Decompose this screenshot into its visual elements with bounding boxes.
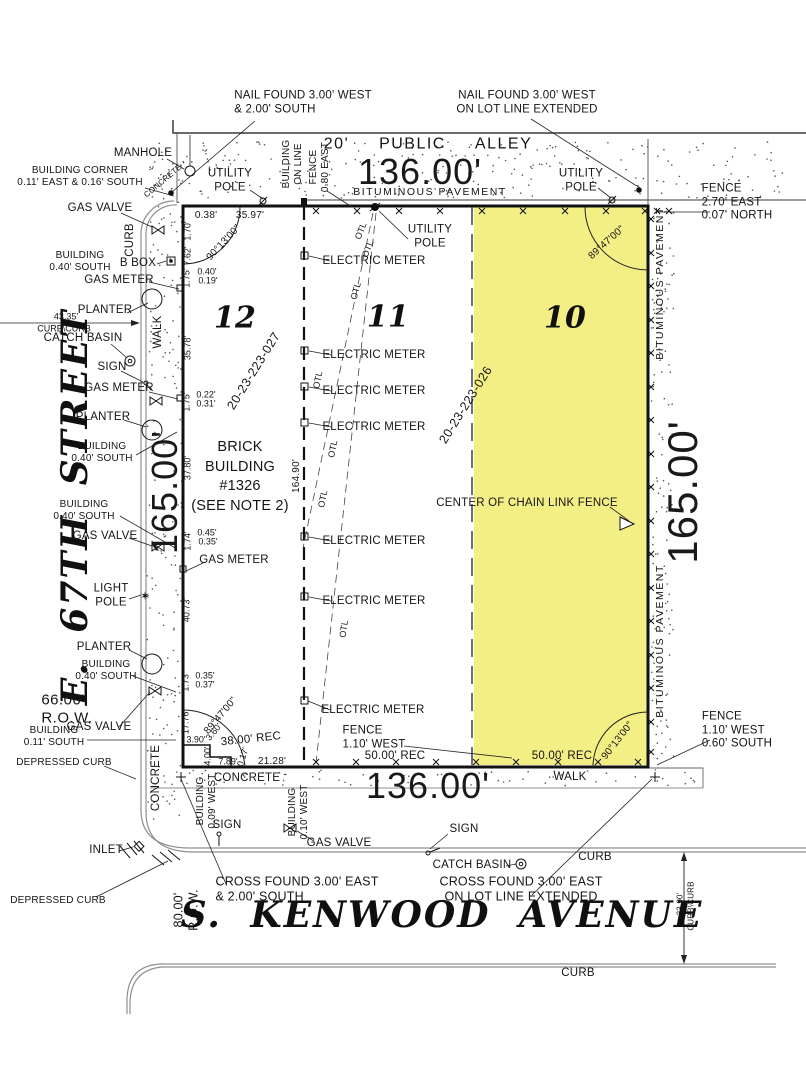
- bituminous-right-label-2: BITUMINOUS PAVEMENT: [654, 564, 666, 718]
- dim-762: 7.62': [183, 246, 194, 265]
- bbox-label: B BOX: [120, 257, 156, 271]
- electric-meter-label-5: ELECTRIC METER: [322, 535, 425, 549]
- curb-left-label: CURB: [124, 223, 138, 256]
- street-67th-label: E. 67TH STREET: [54, 309, 96, 705]
- rec-50-right: 50.00' REC: [532, 750, 592, 764]
- utility-pole-label-3: UTILITY POLE: [408, 223, 452, 250]
- building-040-label-1: BUILDING 0.40' SOUTH: [49, 250, 110, 274]
- planter-3-symbol: [142, 654, 162, 674]
- leader-line: [430, 834, 448, 849]
- building-011-label: BUILDING 0.11' SOUTH: [24, 725, 85, 749]
- gas-valve-label-1: GAS VALVE: [68, 202, 133, 216]
- plat-of-survey: ✶ NAIL FOUND 3.00' WES: [0, 0, 806, 1080]
- lot-12-number: 12: [214, 300, 256, 335]
- dim-165-right: 165.00': [658, 420, 708, 563]
- electric-meter-label-2: ELECTRIC METER: [322, 349, 425, 363]
- depressed-curb-hatching: [120, 841, 180, 865]
- dim-2128: 21.28': [258, 756, 286, 768]
- leader-line: [133, 676, 176, 692]
- lot-10-highlight: [474, 207, 648, 765]
- gas-meter-label-1: GAS METER: [84, 274, 154, 288]
- fence-ne-label: FENCE 2.70' EAST 0.07' NORTH: [702, 183, 773, 224]
- gas-meter-label-3: GAS METER: [199, 554, 269, 568]
- building-040-label-4: BUILDING 0.40' SOUTH: [75, 659, 136, 683]
- chain-link-fence-label: CENTER OF CHAIN LINK FENCE: [436, 497, 618, 511]
- bituminous-right-label-1: BITUMINOUS PAVEMENT: [654, 206, 666, 360]
- utility-pole-3-symbol: [608, 196, 616, 204]
- utility-pole-label-1: UTILITY POLE: [208, 167, 252, 194]
- rec-50-mid: 50.00' REC: [365, 750, 425, 764]
- dim-175-b: 1.75': [182, 392, 193, 411]
- dim-175-a: 1.75': [182, 268, 193, 287]
- manhole-symbol: [185, 166, 195, 176]
- dim-3390: 33.90': [675, 893, 684, 916]
- dim-035-a: 0.35': [198, 537, 217, 548]
- concrete-left-label: CONCRETE: [150, 745, 164, 811]
- walk-left-label: WALK: [152, 316, 166, 349]
- dim-038: 0.38': [195, 210, 217, 222]
- sign-label-2: SIGN: [213, 819, 242, 833]
- sign-2-symbol: [217, 832, 221, 846]
- dim-031: 0.31': [196, 399, 215, 410]
- catch-basin-label-2: CATCH BASIN: [433, 859, 512, 873]
- dim-400: 4.00': [203, 746, 214, 765]
- utility-pole-label-2: UTILITY POLE: [559, 167, 603, 194]
- walk-bottom-label: WALK: [554, 771, 587, 785]
- light-pole-symbol: ✶: [140, 589, 150, 603]
- concrete-bottom-label: CONCRETE: [214, 772, 280, 786]
- brick-building-label: BRICK BUILDING #1326 (SEE NOTE 2): [191, 438, 288, 516]
- leader-line: [111, 344, 126, 357]
- cross-sw-symbol: [176, 772, 186, 782]
- dim-170: 1.70': [183, 221, 194, 240]
- depressed-curb-label-2: DEPRESSED CURB: [10, 895, 106, 907]
- curbcurb-label-2: CURB\CURB: [686, 881, 695, 930]
- fence-sw-label: FENCE 1.10' WEST: [343, 724, 406, 751]
- dim-019: 0.19': [198, 276, 217, 287]
- electric-meter-label-3: ELECTRIC METER: [322, 385, 425, 399]
- dim-136-bottom: 136.00': [366, 765, 490, 807]
- corner-post: [301, 198, 307, 206]
- otl-lines: [303, 213, 376, 763]
- cross-se-symbol: [650, 772, 660, 782]
- depressed-curb-label-1: DEPRESSED CURB: [16, 757, 112, 769]
- electric-meter-label-6: ELECTRIC METER: [322, 595, 425, 609]
- nail-nw-symbol: [169, 191, 174, 196]
- lot-10-number: 10: [544, 300, 586, 335]
- utility-pole-2-symbol: [370, 203, 380, 211]
- gas-valve-4-symbol: [149, 687, 161, 695]
- sign-label-1: SIGN: [98, 361, 127, 375]
- leader-line: [157, 261, 166, 264]
- fence-se-label: FENCE 1.10' WEST 0.60' SOUTH: [702, 711, 772, 752]
- electric-meter-label-4: ELECTRIC METER: [322, 421, 425, 435]
- catch-basin-2-symbol: [516, 859, 526, 869]
- curb-label-1: CURB: [578, 851, 611, 865]
- bituminous-alley-label: BITUMINOUS PAVEMENT: [353, 186, 507, 198]
- lot-11-number: 11: [367, 299, 409, 334]
- nail-ne-symbol: [637, 188, 642, 193]
- utility-pole-1-symbol: [259, 197, 267, 205]
- electric-meter-label-1: ELECTRIC METER: [322, 255, 425, 269]
- manhole-label: MANHOLE: [114, 147, 172, 161]
- dim-16490: 164.90': [291, 459, 303, 493]
- curb-label-2: CURB: [561, 967, 594, 981]
- building-corner-label: BUILDING CORNER 0.11' EAST & 0.16' SOUTH: [17, 165, 143, 189]
- dim-1776: 17.76': [181, 710, 192, 734]
- building-on-line-label: BUILDING ON LINE: [281, 140, 305, 189]
- electric-meter-label-7: ELECTRIC METER: [321, 704, 424, 718]
- street-kenwood-label: S. KENWOOD AVENUE: [181, 894, 704, 936]
- dim-037: 0.37': [195, 680, 214, 691]
- leader-line: [379, 211, 408, 239]
- dim-165-left: 165.00': [144, 430, 186, 554]
- gas-valve-label-4: GAS VALVE: [307, 837, 372, 851]
- nail-found-ne: NAIL FOUND 3.00' WEST ON LOT LINE EXTEND…: [456, 89, 597, 116]
- light-pole-label: LIGHT POLE: [94, 582, 129, 609]
- gas-valve-1-symbol: [152, 226, 164, 234]
- b-box-symbol: [167, 257, 175, 265]
- gas-valve-2-symbol: [150, 397, 162, 405]
- leader-line: [96, 861, 168, 897]
- dim-3578: 35.78': [183, 336, 194, 360]
- dim-3597: 35.97': [236, 210, 264, 222]
- sign-label-3: SIGN: [450, 823, 479, 837]
- dim-390: 3.90': [186, 735, 205, 746]
- nail-found-nw: NAIL FOUND 3.00' WEST & 2.00' SOUTH: [234, 89, 372, 116]
- catch-basin-1-symbol: [125, 356, 135, 366]
- building-010-label: BUILDING 0.10' WEST: [287, 784, 311, 839]
- dim-173: 1.73': [181, 672, 192, 691]
- dim-4073: 40.73': [182, 598, 193, 622]
- planter-1-symbol: [142, 289, 162, 309]
- inlet-label: INLET: [89, 844, 123, 858]
